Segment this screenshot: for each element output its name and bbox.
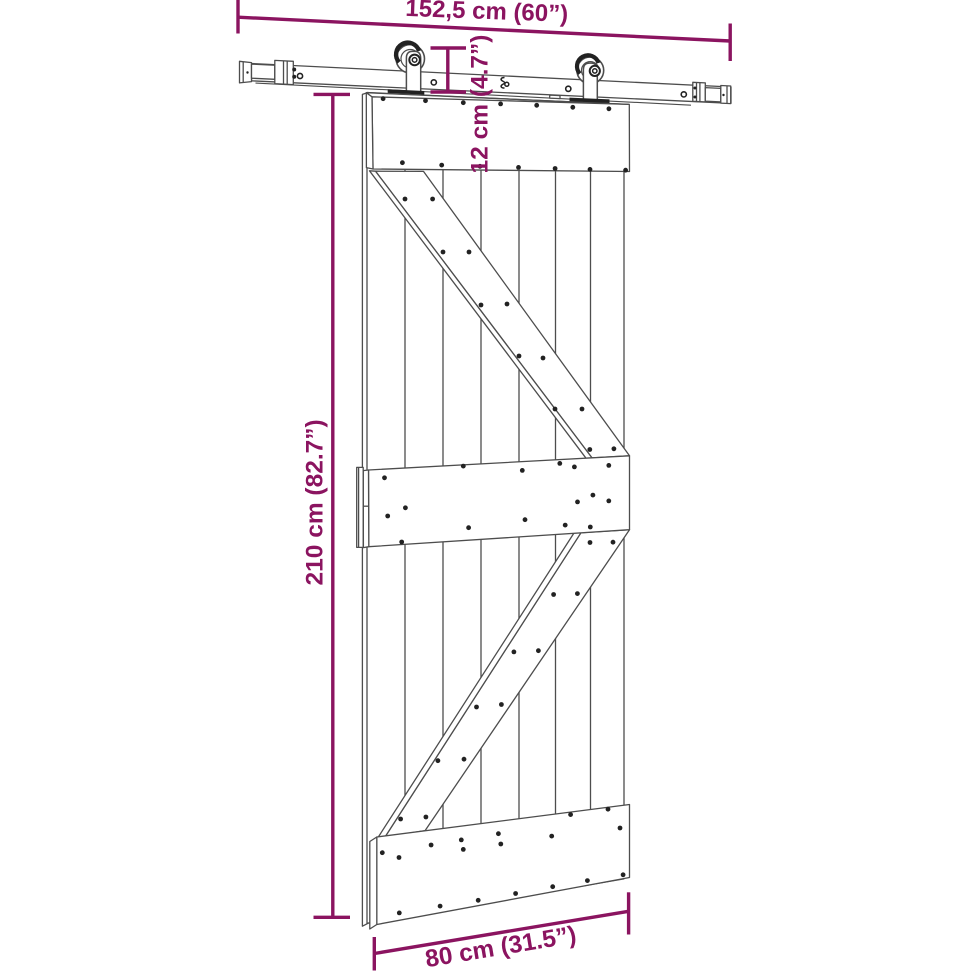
svg-text:12 cm (4.7”): 12 cm (4.7”) xyxy=(467,35,494,174)
svg-text:152,5 cm (60”): 152,5 cm (60”) xyxy=(405,0,569,28)
svg-text:80 cm (31.5”): 80 cm (31.5”) xyxy=(423,922,578,971)
svg-text:210 cm (82.7”): 210 cm (82.7”) xyxy=(302,419,329,585)
